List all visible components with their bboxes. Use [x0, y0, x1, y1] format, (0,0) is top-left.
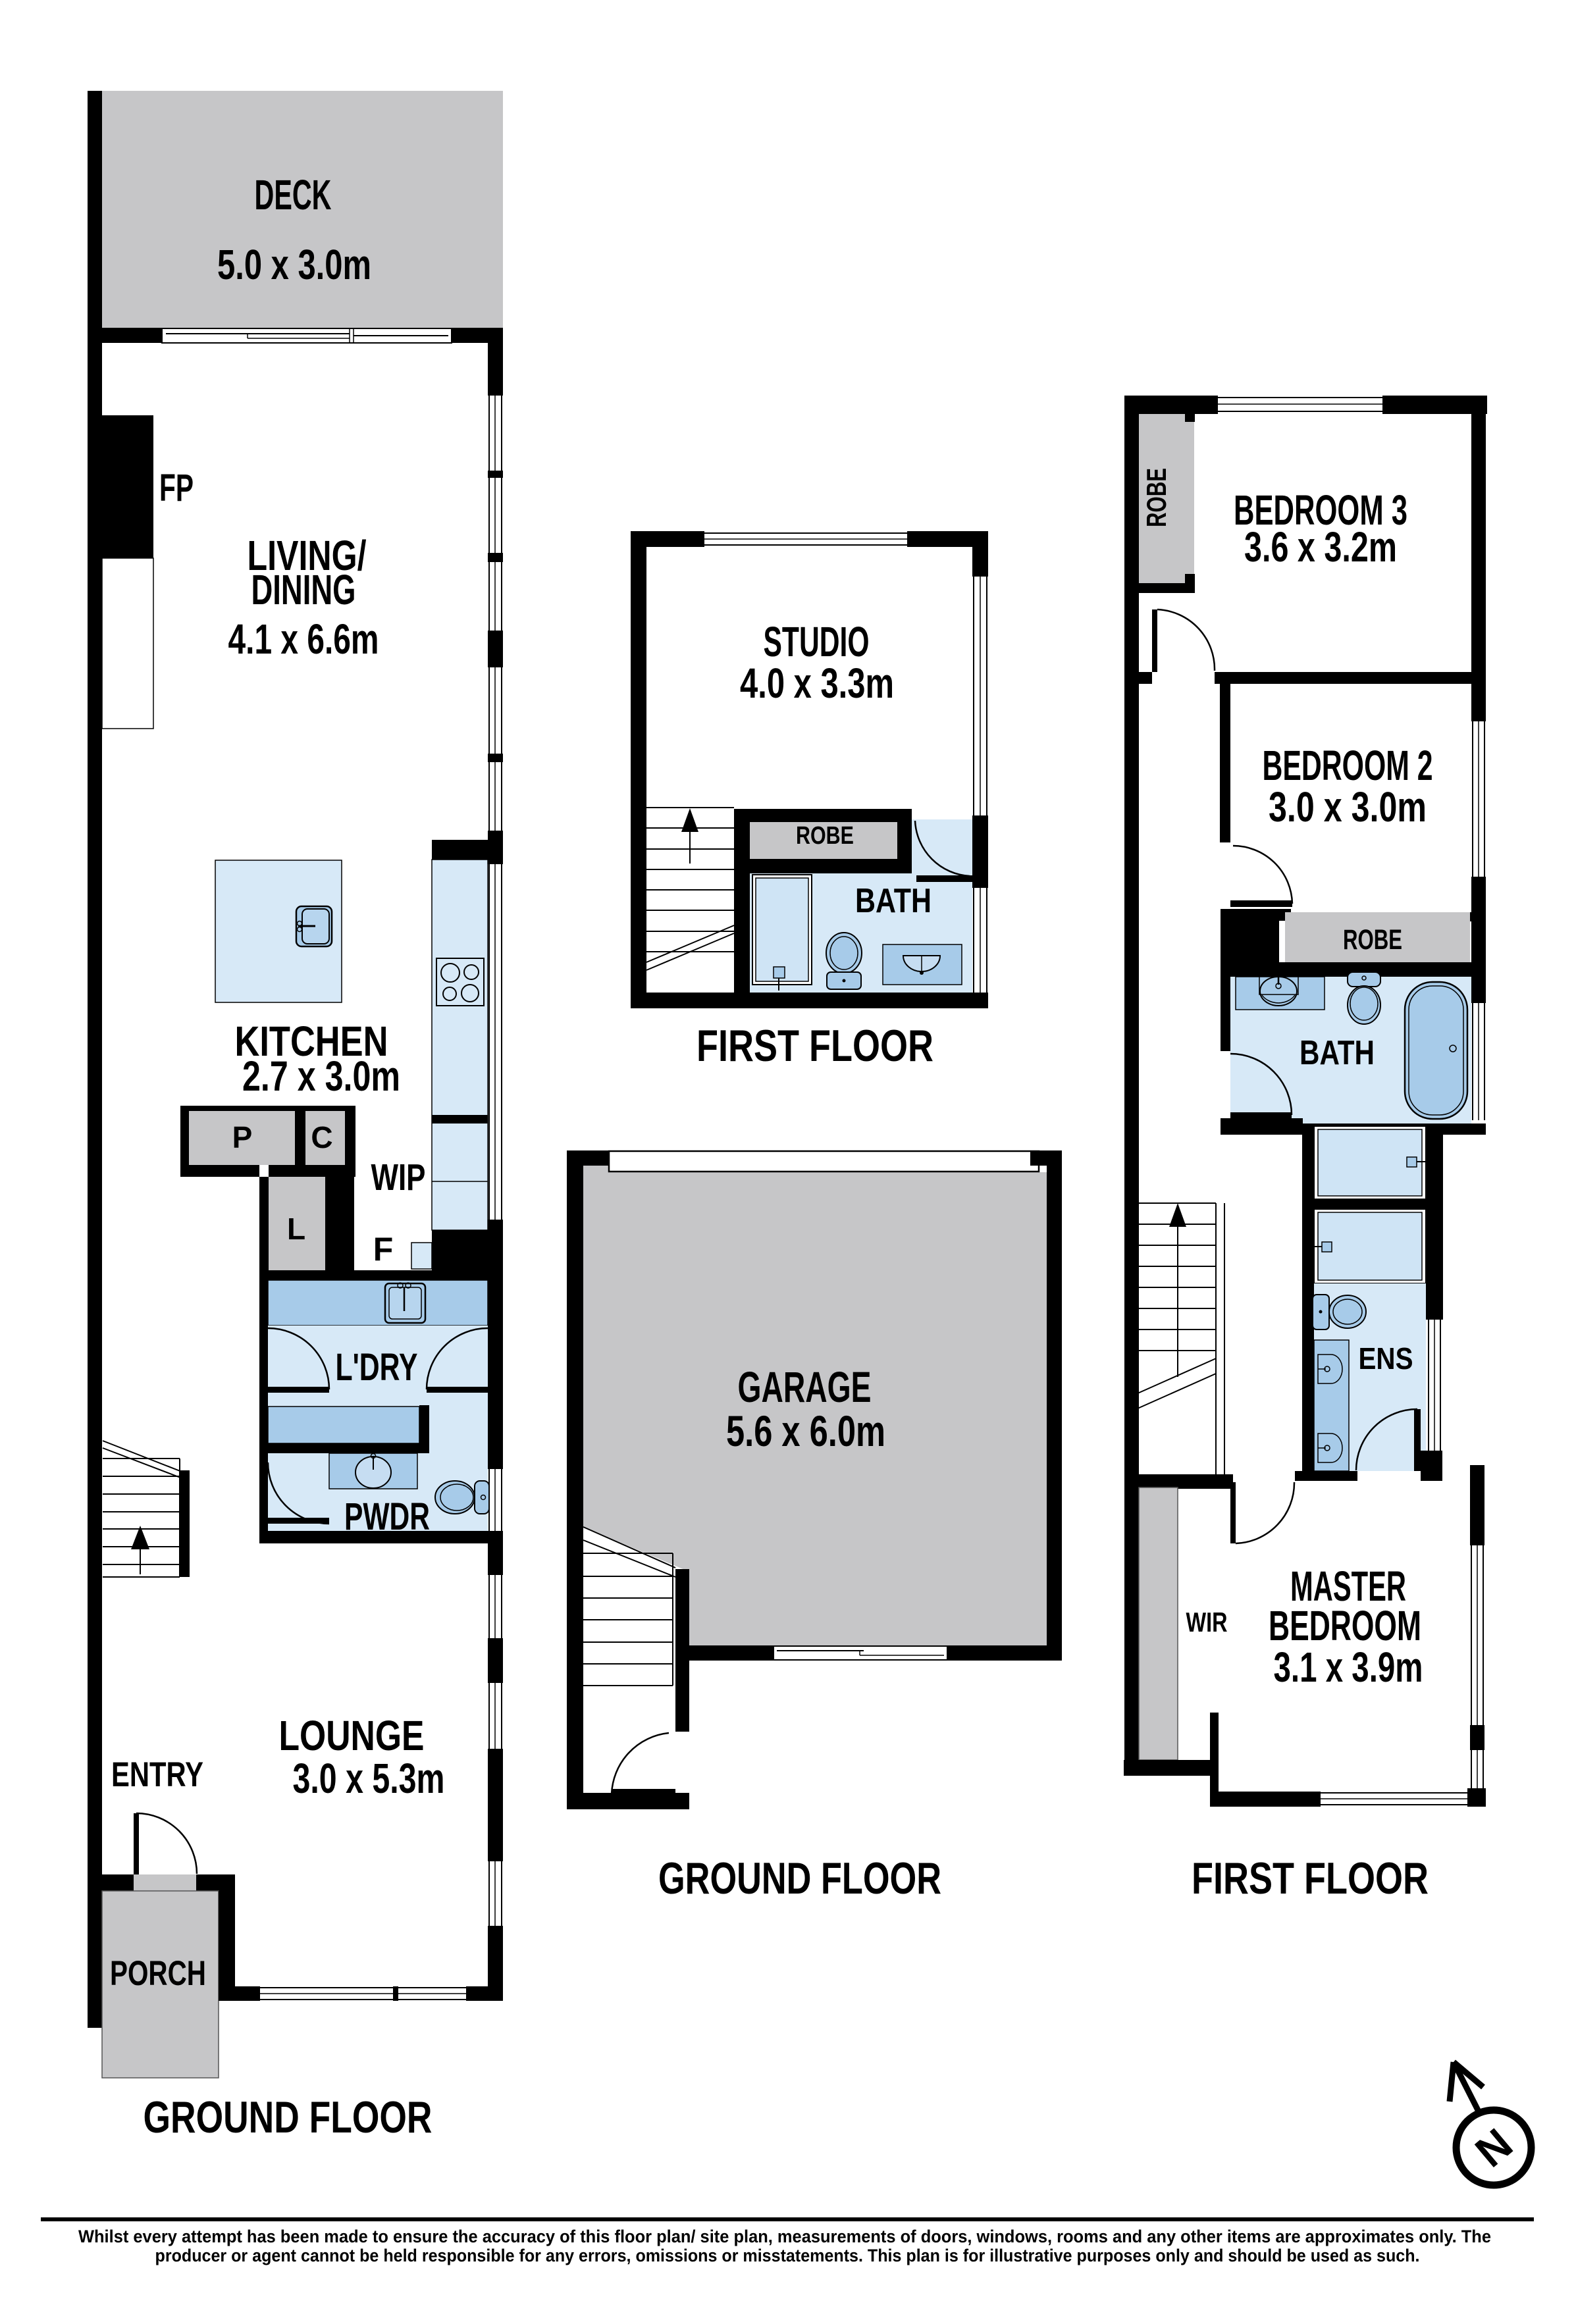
svg-text:3.0 x 3.0m: 3.0 x 3.0m [1269, 783, 1427, 831]
svg-text:3.6 x 3.2m: 3.6 x 3.2m [1244, 523, 1397, 571]
svg-text:5.0 x 3.0m: 5.0 x 3.0m [217, 241, 371, 288]
svg-text:3.0 x 5.3m: 3.0 x 5.3m [293, 1755, 445, 1802]
svg-text:Whilst every attempt has been: Whilst every attempt has been made to en… [78, 2227, 1491, 2246]
svg-text:producer or agent cannot be he: producer or agent cannot be held respons… [155, 2246, 1420, 2265]
svg-text:5.6 x 6.0m: 5.6 x 6.0m [726, 1407, 885, 1455]
svg-text:P: P [232, 1120, 253, 1154]
svg-text:ROBE: ROBE [1343, 924, 1402, 956]
svg-text:DINING: DINING [251, 566, 356, 613]
svg-text:FP: FP [159, 467, 194, 509]
svg-text:ENTRY: ENTRY [111, 1755, 203, 1794]
svg-text:STUDIO: STUDIO [764, 618, 870, 665]
svg-text:DECK: DECK [255, 171, 332, 219]
svg-text:GROUND FLOOR: GROUND FLOOR [658, 1853, 941, 1903]
svg-text:4.0 x 3.3m: 4.0 x 3.3m [740, 659, 894, 707]
svg-text:L'DRY: L'DRY [336, 1346, 418, 1389]
svg-text:ROBE: ROBE [1141, 468, 1172, 527]
svg-text:GROUND FLOOR: GROUND FLOOR [144, 2092, 433, 2142]
svg-text:BEDROOM 2: BEDROOM 2 [1263, 742, 1433, 789]
svg-text:C: C [311, 1120, 332, 1154]
svg-text:WIR: WIR [1186, 1607, 1228, 1638]
svg-text:4.1 x 6.6m: 4.1 x 6.6m [228, 615, 379, 663]
svg-text:ENS: ENS [1359, 1341, 1413, 1376]
svg-text:BATH: BATH [855, 882, 932, 920]
svg-text:GARAGE: GARAGE [738, 1362, 872, 1411]
svg-text:LOUNGE: LOUNGE [279, 1712, 425, 1759]
svg-text:F: F [373, 1231, 394, 1268]
svg-text:BATH: BATH [1300, 1034, 1375, 1072]
svg-text:BEDROOM: BEDROOM [1269, 1602, 1421, 1649]
svg-text:PORCH: PORCH [110, 1954, 206, 1993]
svg-text:2.7 x 3.0m: 2.7 x 3.0m [242, 1052, 400, 1100]
svg-text:L: L [287, 1212, 305, 1246]
svg-text:3.1 x 3.9m: 3.1 x 3.9m [1274, 1643, 1423, 1691]
svg-text:FIRST FLOOR: FIRST FLOOR [696, 1021, 933, 1071]
svg-text:ROBE: ROBE [796, 822, 854, 850]
svg-text:FIRST FLOOR: FIRST FLOOR [1192, 1853, 1429, 1903]
svg-text:WIP: WIP [371, 1156, 426, 1199]
